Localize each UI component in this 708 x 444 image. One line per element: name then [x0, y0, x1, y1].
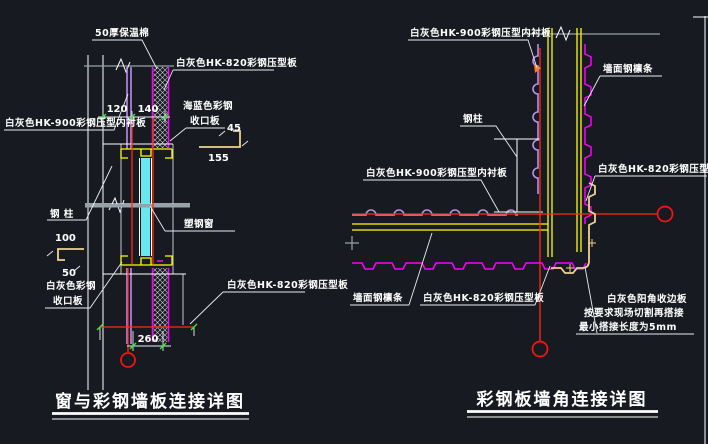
label-panel-outer-bottom: 白灰色HK-820彩钢压型板: [423, 292, 544, 304]
cad-canvas: 120 140 260 45 155 100 50 50厚保温棉 白灰色HK-8…: [0, 0, 708, 444]
outer-panels: [352, 44, 591, 269]
column-face-lines: [88, 55, 103, 390]
purlin-lines: [352, 28, 581, 257]
dim-155: 155: [208, 153, 229, 164]
axis-bubble-right: [658, 207, 673, 222]
axis-bubble: [121, 353, 135, 367]
label-window: 塑钢窗: [184, 218, 214, 230]
mid-cut-band-overlay: [85, 204, 190, 208]
corner-flashing: [551, 183, 595, 273]
label-liner: 白灰色HK-900彩钢压型内衬板: [5, 117, 146, 129]
label-panel-outer-right: 白灰色HK-820彩钢压型板: [598, 163, 708, 175]
label-panel-outer-bottom: 白灰色HK-820彩钢压型板: [227, 279, 348, 291]
label-steel-column: 钢 柱: [50, 208, 74, 220]
dim-45: 45: [227, 123, 241, 134]
left-detail: 120 140 260 45 155 100 50 50厚保温棉 白灰色HK-8…: [4, 27, 348, 419]
dim-50: 50: [62, 268, 76, 279]
label-corner-note-2: 按要求现场切割再搭接: [584, 307, 684, 319]
dim-100: 100: [55, 233, 76, 244]
right-title: 彩钢板墙角连接详图: [476, 389, 648, 410]
label-insulation: 50厚保温棉: [95, 27, 149, 39]
dim-140: 140: [138, 104, 159, 115]
label-corner-note-1: 白灰色阳角收边板: [607, 293, 687, 305]
label-blue-closure-2: 收口板: [190, 115, 220, 127]
right-detail: 白灰色HK-900彩钢压型内衬板 墙面钢檩条 钢柱 白灰色HK-820彩钢压型板…: [345, 27, 708, 417]
label-white-closure-2: 收口板: [53, 295, 83, 307]
window-sill-channel: [121, 256, 172, 265]
label-corner-note-3: 最小搭接长度为5mm: [579, 321, 677, 333]
drawing-frame-edge: [693, 16, 708, 444]
window-head-channel: [121, 149, 172, 158]
leader-lines: [350, 40, 707, 334]
label-purlin-top: 墙面钢檩条: [603, 63, 653, 75]
label-panel-outer-top: 白灰色HK-820彩钢压型板: [176, 57, 297, 69]
axis-bubble-bottom: [533, 342, 548, 357]
cad-drawing: 120 140 260 45 155 100 50 50厚保温棉 白灰色HK-8…: [0, 0, 708, 444]
insulation-hatch-bottom: [154, 268, 168, 342]
left-title: 窗与彩钢墙板连接详图: [55, 391, 245, 412]
sill-closure-profile: [58, 249, 84, 260]
label-liner-top: 白灰色HK-900彩钢压型内衬板: [410, 27, 551, 39]
label-liner-left: 白灰色HK-900彩钢压型内衬板: [366, 167, 507, 179]
label-steel-column: 钢柱: [463, 113, 483, 125]
label-white-closure-1: 白灰色彩钢: [46, 280, 96, 292]
dim-120: 120: [107, 104, 128, 115]
label-purlin-bottom: 墙面钢檩条: [353, 292, 403, 304]
liner-panels: [352, 44, 538, 215]
dim-260: 260: [138, 334, 159, 345]
label-blue-closure-1: 海蓝色彩钢: [183, 100, 233, 112]
